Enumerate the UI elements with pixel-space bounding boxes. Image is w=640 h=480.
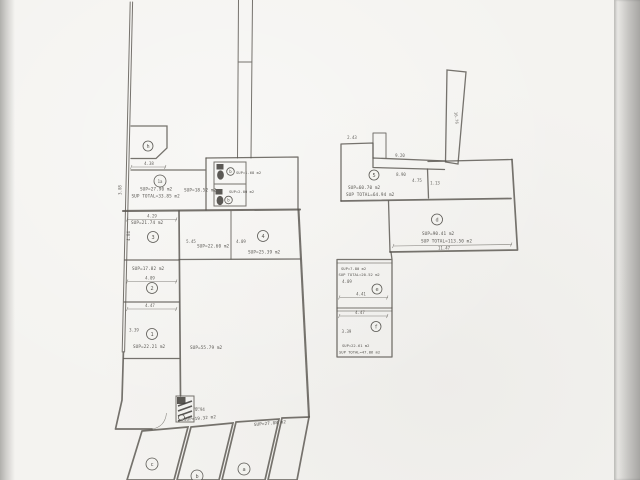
dimension-label: 4.29: [147, 214, 157, 219]
bottom-wing: c b a SUP=19.32 m2 SUP=27.88 m2: [127, 414, 309, 480]
room-2-area: SUP=17.82 m2: [132, 266, 165, 272]
dimension-label: 5.45: [186, 239, 196, 244]
dimension-label: 4.09: [342, 279, 352, 284]
wall-5-d-shared: [341, 199, 511, 202]
room-e-area: SUP=7.80 m2: [341, 266, 366, 271]
dimension-label: 4.41: [356, 292, 366, 297]
dimension-label: 3.39: [342, 329, 352, 334]
dimension-label: 4.09: [145, 276, 155, 281]
right-building: 16.76 8.90 2.43 9.20 4.75 1.13 5 SUP=60.…: [337, 70, 518, 357]
room-1-label: 1: [150, 332, 153, 338]
dimension-label: 4.84: [126, 231, 131, 241]
room-c-label: c: [150, 462, 153, 468]
room-1a-area-total: SUP TOTAL=33.85 m2: [132, 194, 181, 200]
store-area: SUP=22.60 m2: [197, 244, 230, 250]
room-2-label: 2: [150, 286, 153, 292]
room-5-area: SUP=60.70 m2: [348, 185, 381, 191]
room-h-label: h: [146, 144, 149, 150]
dimension-label: 4.47: [145, 303, 155, 308]
room-4-label: 4: [261, 234, 264, 240]
room-3-label: 3: [151, 235, 154, 241]
room-1a-outline: [131, 158, 206, 210]
dimension-label: 9.20: [395, 153, 405, 158]
room-4-area: SUP=25.39 m2: [248, 250, 281, 256]
hall-top-area: SUP=18.52 m2: [184, 188, 217, 194]
left-building: h 4.38 1a SUP=27.90 m2 SUP TOTAL=33.85 m…: [116, 0, 310, 480]
wall-main-horizontal: [123, 210, 300, 212]
room-a-label: a: [242, 467, 245, 473]
dimension-label: 3.08: [118, 185, 123, 195]
room-d-label: d: [435, 218, 438, 224]
dimension-label: 16.76: [453, 112, 459, 125]
room-b2-area: SUP=19.32 m2: [184, 414, 217, 423]
wall-outer-left-lower: [116, 352, 153, 429]
room-e-area-total: SUP TOTAL=20.52 m2: [339, 272, 380, 277]
wall-center-horizontal: [179, 259, 300, 260]
dimension-label: 4.75: [412, 178, 422, 183]
dimension-label: 8.90: [396, 172, 406, 177]
room-1-area: SUP=22.21 m2: [133, 344, 166, 350]
dimension-label: 11.47: [438, 246, 451, 251]
strip-horizontal-outline: [373, 158, 446, 170]
room-d-walls: [389, 160, 513, 253]
room-partial-outline: [268, 417, 309, 480]
dimension-label: 3.39: [129, 328, 139, 333]
scanned-floor-plan-page: h 4.38 1a SUP=27.90 m2 SUP TOTAL=33.85 m…: [0, 0, 640, 480]
wall-corridor: [238, 0, 253, 158]
dimension-label: 4.38: [144, 161, 154, 166]
wall-left-column: [179, 211, 181, 396]
toilet-icon: [216, 189, 224, 205]
wall-outer-left: [122, 2, 132, 352]
dimension-label: 1.13: [430, 181, 440, 186]
room-5-label: 5: [372, 173, 375, 179]
room-1a-area: SUP=27.90 m2: [140, 187, 173, 193]
toilet-icon: [217, 164, 224, 180]
room-3-area: SUP=21.74 m2: [131, 220, 164, 226]
room-b2-label: b: [195, 474, 198, 480]
room-e-label: e: [375, 287, 378, 293]
room-d-area-total: SUP TOTAL=113.50 m2: [421, 239, 472, 245]
dimension-label: 4.47: [355, 310, 365, 315]
bath-upper-area: SUP=1.68 m2: [236, 170, 261, 175]
room-f-area-total: SUP TOTAL=47.86 m2: [339, 350, 380, 355]
dimension-label: 0.94: [195, 407, 205, 412]
floor-plan-svg: h 4.38 1a SUP=27.90 m2 SUP TOTAL=33.85 m…: [0, 0, 640, 480]
room-5-area-total: SUP TOTAL=64.94 m2: [346, 192, 395, 198]
hall-main-area: SUP=55.79 m2: [190, 345, 223, 351]
room-d-outer: [390, 160, 518, 253]
room-f-label: f: [374, 325, 377, 331]
door-arc: [152, 413, 167, 429]
dimension-label: 2.43: [347, 135, 357, 140]
wall-outer-right-tilted: [299, 210, 310, 417]
dimension-label: 4.09: [236, 239, 246, 244]
strip-notch: [373, 133, 386, 158]
room-d-area: SUP=90.41 m2: [422, 231, 455, 237]
room-1a-label: 1a: [158, 179, 163, 184]
room-f-area: SUP=22.61 m2: [342, 343, 369, 348]
bath-lower-area: SUP=2.00 m2: [229, 189, 254, 194]
